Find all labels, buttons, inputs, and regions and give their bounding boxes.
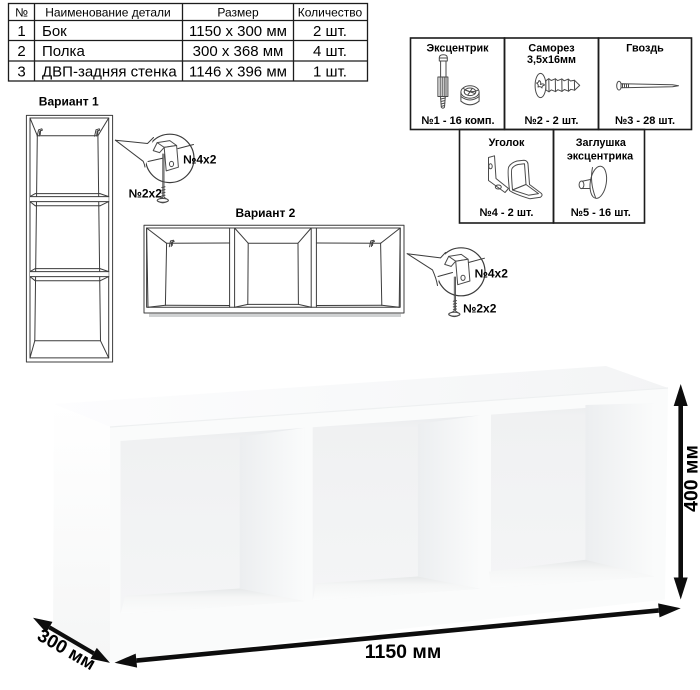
svg-text:Заглушка: Заглушка [576, 137, 627, 149]
svg-text:1150 х 300 мм: 1150 х 300 мм [189, 23, 287, 40]
svg-text:1146 х 396 мм: 1146 х 396 мм [189, 63, 287, 80]
svg-text:2: 2 [17, 43, 25, 60]
svg-text:№3 - 28 шт.: №3 - 28 шт. [615, 115, 675, 127]
svg-text:1: 1 [17, 23, 25, 40]
svg-text:1 шт.: 1 шт. [313, 63, 347, 80]
svg-text:№2 - 2 шт.: №2 - 2 шт. [525, 115, 579, 127]
svg-text:№5 - 16 шт.: №5 - 16 шт. [571, 207, 631, 219]
svg-text:Полка: Полка [42, 43, 85, 60]
svg-text:Размер: Размер [217, 6, 259, 20]
svg-text:ДВП-задняя стенка: ДВП-задняя стенка [42, 63, 177, 80]
svg-text:4 шт.: 4 шт. [313, 43, 347, 60]
svg-text:№2х2: №2х2 [129, 186, 163, 200]
svg-text:Уголок: Уголок [489, 137, 525, 149]
svg-text:400 мм: 400 мм [681, 445, 700, 512]
svg-text:3: 3 [17, 63, 25, 80]
svg-text:№: № [15, 6, 28, 20]
svg-text:№1 - 16 комп.: №1 - 16 комп. [421, 115, 494, 127]
svg-text:№4 - 2 шт.: №4 - 2 шт. [480, 207, 534, 219]
svg-text:№4х2: №4х2 [183, 152, 217, 166]
svg-text:Саморез: Саморез [528, 42, 574, 54]
svg-text:Наименование детали: Наименование детали [45, 6, 171, 20]
svg-text:3,5х16мм: 3,5х16мм [527, 54, 576, 66]
svg-text:Гвоздь: Гвоздь [626, 42, 664, 54]
svg-text:Вариант 2: Вариант 2 [236, 206, 296, 220]
svg-text:Бок: Бок [42, 23, 67, 40]
svg-text:2 шт.: 2 шт. [313, 23, 347, 40]
svg-text:Вариант 1: Вариант 1 [39, 94, 99, 108]
svg-text:Эксцентрик: Эксцентрик [426, 42, 489, 54]
svg-text:эксцентрика: эксцентрика [567, 151, 634, 163]
svg-text:№4х2: №4х2 [475, 266, 509, 280]
svg-text:№2х2: №2х2 [463, 301, 497, 315]
svg-text:Количество: Количество [298, 6, 363, 20]
svg-text:1150 мм: 1150 мм [365, 641, 442, 663]
svg-text:300 х 368 мм: 300 х 368 мм [193, 43, 284, 60]
